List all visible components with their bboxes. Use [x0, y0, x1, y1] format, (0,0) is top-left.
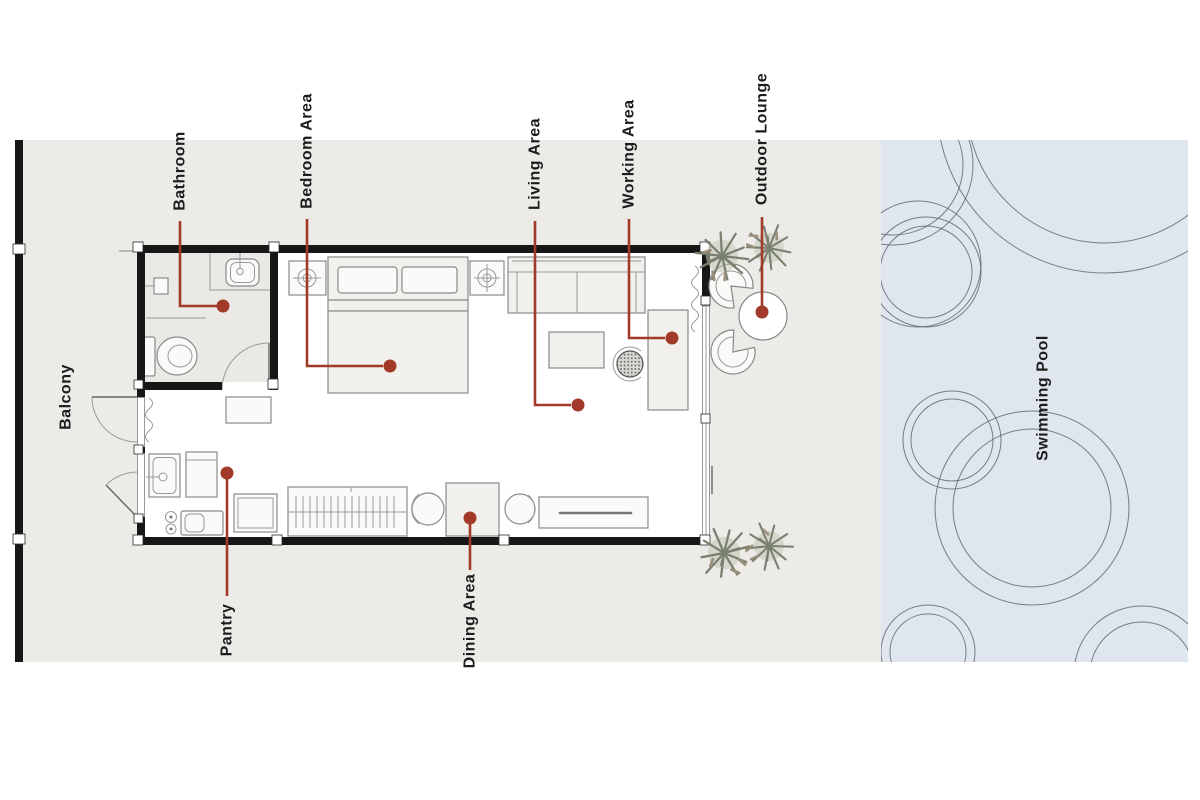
pantry-sink: [146, 454, 180, 497]
label-living-area: Living Area: [527, 118, 544, 210]
nightstand-right: [470, 261, 504, 295]
shower-control: [154, 278, 168, 294]
floor-plan-page: Bathroom Bedroom Area Living Area Workin…: [0, 0, 1200, 800]
fridge: [186, 452, 217, 497]
console-bench: [539, 497, 648, 528]
stool: [181, 511, 223, 535]
label-dining-area: Dining Area: [462, 574, 479, 669]
dining-table: [446, 483, 499, 536]
label-swimming-pool: Swimming Pool: [1035, 335, 1052, 461]
label-balcony: Balcony: [58, 364, 75, 430]
toilet: [144, 337, 197, 376]
dishwasher: [234, 494, 277, 532]
bed: [328, 257, 468, 393]
label-bedroom-area: Bedroom Area: [299, 93, 316, 209]
label-outdoor-lounge: Outdoor Lounge: [754, 73, 771, 205]
label-working-area: Working Area: [621, 99, 638, 208]
floor-plan-drawing: Bathroom Bedroom Area Living Area Workin…: [0, 0, 1200, 800]
kitchen-range: [288, 487, 407, 536]
dining-chair-right: [505, 494, 535, 524]
desk: [648, 310, 688, 410]
dining-chair-left: [412, 493, 444, 525]
coffee-table: [549, 332, 604, 368]
label-pantry: Pantry: [219, 604, 236, 657]
sofa: [508, 257, 645, 313]
label-bathroom: Bathroom: [172, 131, 189, 211]
washer: [226, 397, 271, 423]
